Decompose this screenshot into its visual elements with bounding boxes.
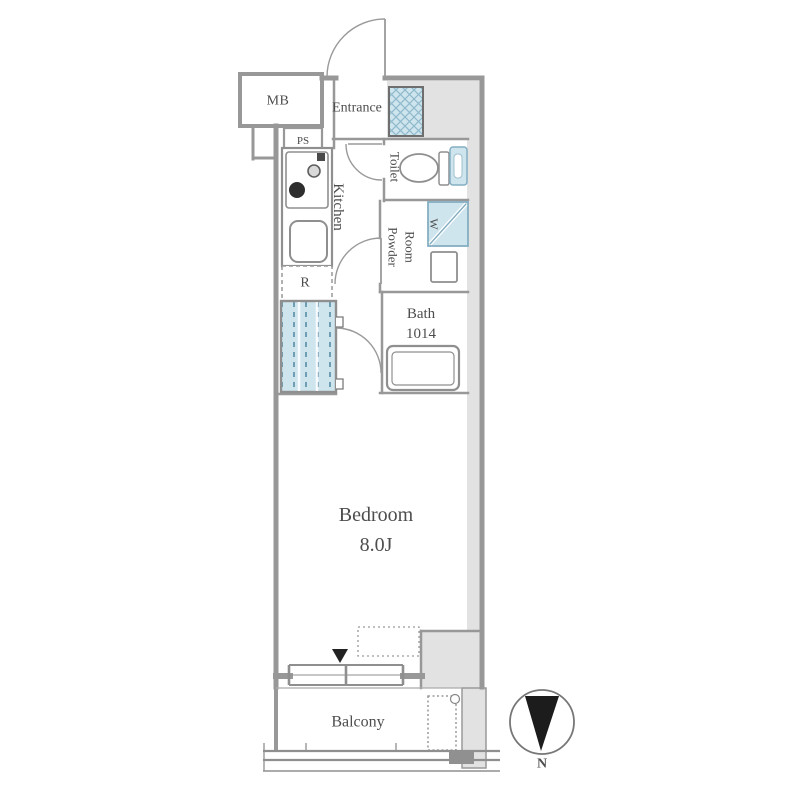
bedroom-door-arc: [337, 328, 381, 373]
bedroom-notch-shade: [421, 631, 480, 688]
mb-label: MB: [267, 94, 290, 109]
toilet-seat-hinge: [439, 152, 449, 185]
kitchen-counter: [282, 148, 332, 266]
bath-label-line1: Bath: [407, 306, 436, 322]
washer-label: W: [427, 218, 441, 230]
balcony-label: Balcony: [331, 714, 384, 731]
shoe-cabinet: [389, 87, 423, 136]
stove-control: [317, 153, 325, 161]
balcony-corner-block: [449, 750, 474, 764]
closet: [281, 301, 343, 392]
hall-door-arc: [335, 238, 381, 284]
refrigerator-label: R: [300, 276, 310, 291]
kitchen-sink: [290, 221, 327, 262]
bedroom-window: [289, 665, 403, 685]
powder-room-label-line2: Room: [403, 231, 418, 263]
compass-north-label: N: [537, 757, 547, 772]
entrance-door-arc: [327, 19, 385, 77]
stove-burner-large: [289, 182, 305, 198]
section-marker-triangle: [332, 649, 348, 663]
toilet-bowl: [400, 154, 438, 182]
bedroom-size-label: 8.0J: [360, 534, 393, 556]
bedroom-label: Bedroom: [339, 504, 414, 526]
laundry-area: [428, 202, 468, 282]
bathtub: [387, 346, 459, 390]
floorplan-canvas: N MB PS Entrance Kitchen Toilet Powder R…: [0, 0, 800, 800]
ps-label: PS: [297, 135, 309, 147]
kitchen-label: Kitchen: [330, 183, 346, 231]
compass-needle: [525, 696, 559, 751]
vanity-sink: [431, 252, 457, 282]
toilet-tank-button: [454, 154, 462, 178]
toilet-fixture: [400, 147, 467, 185]
stove-burner-small: [308, 165, 320, 177]
drain-symbol: [451, 695, 460, 704]
bath-label-line2: 1014: [406, 326, 437, 342]
toilet-door-arc: [346, 144, 382, 180]
dashed-upper-storage-outline: [358, 627, 419, 656]
evacuation-hatch-outline: [428, 696, 456, 750]
powder-room-label-line1: Powder: [386, 227, 401, 267]
floorplan-drawing: N MB PS Entrance Kitchen Toilet Powder R…: [0, 0, 800, 800]
compass: N: [510, 690, 574, 772]
entrance-label: Entrance: [332, 101, 382, 116]
right-wall-shade: [467, 81, 480, 687]
toilet-label: Toilet: [388, 152, 403, 183]
